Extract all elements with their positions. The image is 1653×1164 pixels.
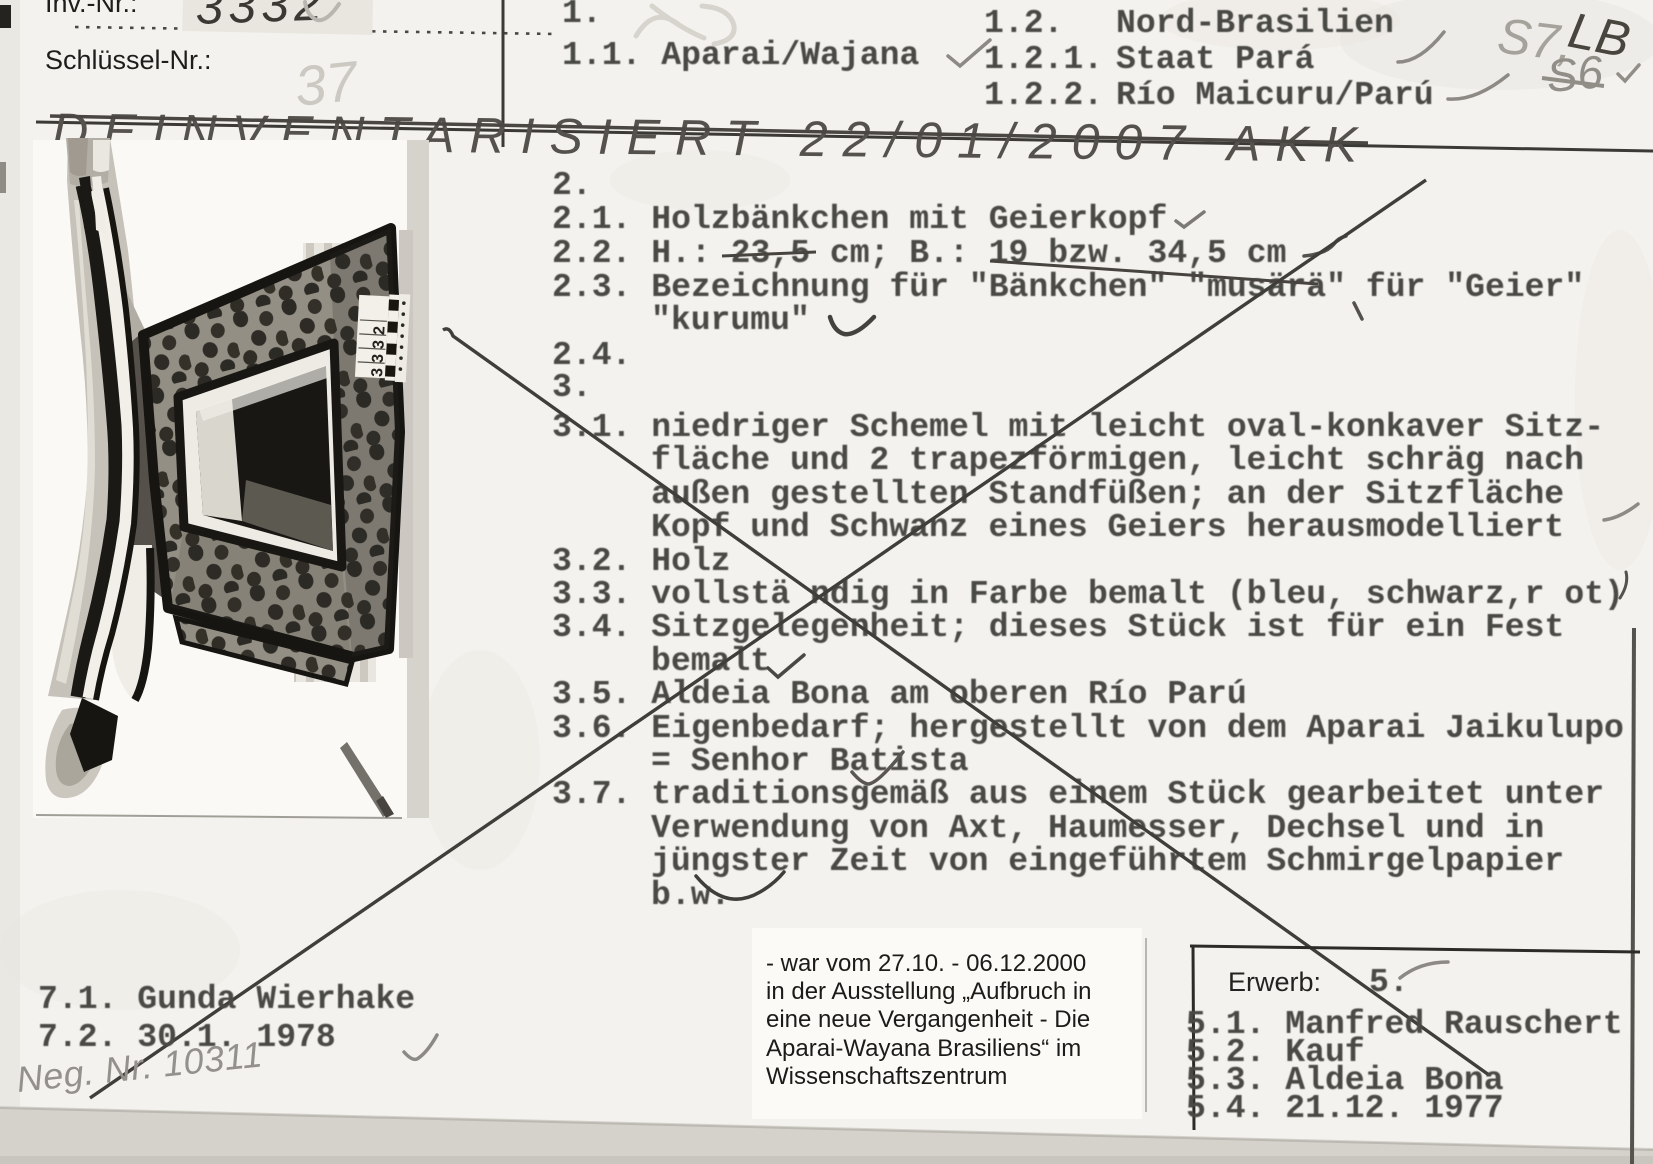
svg-text:2: 2 [371, 326, 388, 336]
svg-text:2.1. Holzbänkchen mit Geierkop: 2.1. Holzbänkchen mit Geierkopf [552, 200, 1167, 238]
svg-text:3: 3 [369, 367, 386, 377]
svg-text:Aparai-Wayana Brasiliens“ im: Aparai-Wayana Brasiliens“ im [766, 1035, 1081, 1062]
svg-text:Wissenschaftszentrum: Wissenschaftszentrum [766, 1063, 1007, 1090]
svg-text:Río Maicuru/Parú: Río Maicuru/Parú [1116, 76, 1434, 114]
svg-text:2.2. H.: 23,5 cm; B.: 19 bzw.: 2.2. H.: 23,5 cm; B.: 19 bzw. 34,5 cm [552, 234, 1286, 272]
svg-text:jüngster Zeit von eingeführtem: jüngster Zeit von eingeführtem Schmirgel… [651, 842, 1564, 880]
svg-text:5.4. 21.12. 1977: 5.4. 21.12. 1977 [1186, 1089, 1504, 1127]
svg-text:3: 3 [370, 340, 387, 350]
svg-text:3: 3 [370, 354, 387, 364]
svg-text:1.1. Aparai/Wajana: 1.1. Aparai/Wajana [562, 36, 919, 74]
svg-text:Erwerb:: Erwerb: [1228, 967, 1321, 997]
svg-text:- war vom 27.10. - 06.12.2000: - war vom 27.10. - 06.12.2000 [766, 950, 1086, 977]
svg-text:Inv.-Nr.:: Inv.-Nr.: [45, 0, 138, 18]
svg-text:1.2.1.: 1.2.1. [984, 40, 1103, 78]
svg-text:"kurumu": "kurumu" [651, 301, 810, 339]
svg-text:5.: 5. [1369, 963, 1409, 1001]
svg-text:3.: 3. [552, 368, 592, 406]
svg-text:fläche und 2 trapezförmigen, l: fläche und 2 trapezförmigen, leicht schr… [651, 441, 1584, 479]
svg-text:2.: 2. [552, 166, 592, 204]
svg-text:eine neue Vergangenheit - Die: eine neue Vergangenheit - Die [766, 1006, 1090, 1033]
svg-text:1.2.: 1.2. [984, 4, 1063, 42]
svg-text:1.2.2.: 1.2.2. [984, 76, 1103, 114]
svg-text:Staat Pará: Staat Pará [1116, 40, 1315, 78]
svg-text:1.: 1. [562, 0, 602, 32]
svg-text:in der Ausstellung „Aufbruch i: in der Ausstellung „Aufbruch in [766, 978, 1092, 1005]
svg-text:3.4. Sitzgelegenheit; dieses S: 3.4. Sitzgelegenheit; dieses Stück ist f… [552, 608, 1564, 646]
svg-text:Schlüssel-Nr.:: Schlüssel-Nr.: [45, 45, 212, 75]
svg-text:7.1. Gunda Wierhake: 7.1. Gunda Wierhake [38, 980, 415, 1018]
svg-text:Nord-Brasilien: Nord-Brasilien [1116, 4, 1394, 42]
svg-text:S6: S6 [1544, 45, 1605, 102]
svg-text:Kopf und Schwanz eines Geiers: Kopf und Schwanz eines Geiers herausmode… [651, 508, 1564, 546]
